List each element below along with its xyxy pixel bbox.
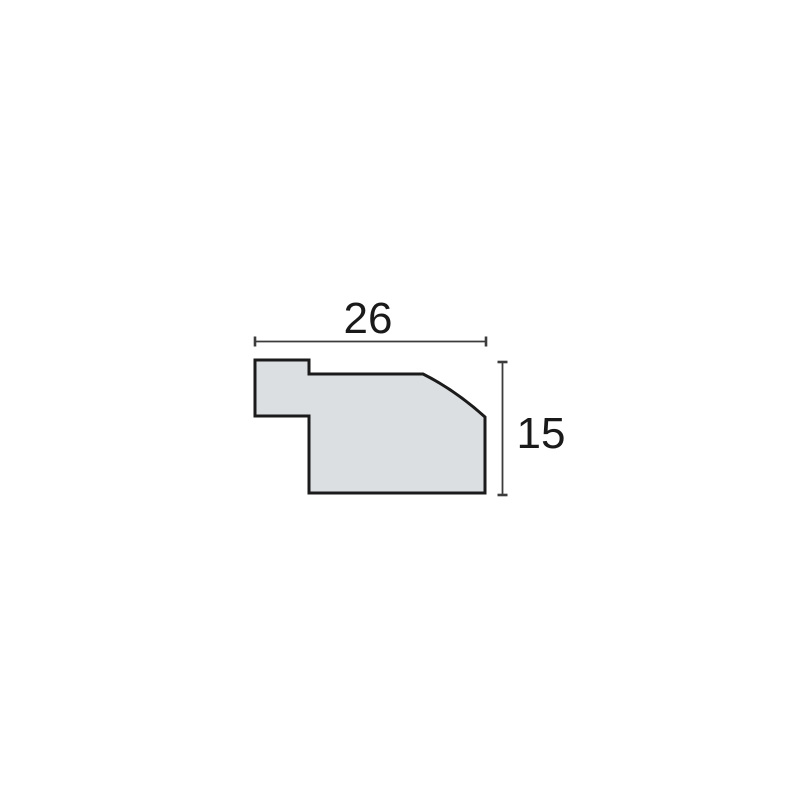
drawing-canvas: 26 15 (0, 0, 800, 800)
height-dimension-label: 15 (517, 409, 566, 458)
moulding-profile-shape (255, 360, 485, 493)
moulding-profile-diagram: 26 15 (0, 0, 800, 800)
width-dimension-label: 26 (344, 294, 393, 343)
width-dimension: 26 (255, 294, 486, 347)
height-dimension: 15 (498, 362, 566, 495)
